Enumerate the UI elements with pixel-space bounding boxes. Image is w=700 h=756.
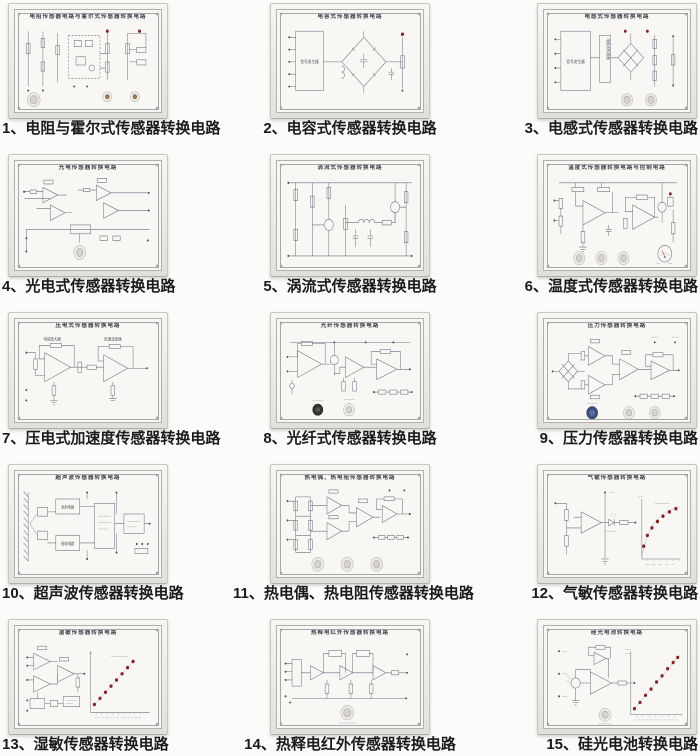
panel-face: 压电式传感器转换电路 电荷放大器 低通滤波器: [14, 318, 162, 423]
knob: [649, 407, 660, 419]
panel-meter: [656, 245, 673, 263]
knob: [599, 708, 611, 721]
circuit-board-2: 电容式传感器转换电路 信号发生器: [270, 3, 430, 119]
knob: [623, 407, 634, 419]
transmit-box-label: 发射电路: [61, 504, 75, 509]
schematic-drawing: 信号发生器 电感式传感器: [548, 23, 686, 109]
circuit-board-9: 压力传感器转换电路: [537, 312, 697, 429]
panel-caption: 1、电阻与霍尔式传感器转换电路: [0, 119, 233, 140]
panel-caption: 2、电容式传感器转换电路: [233, 119, 467, 140]
panel-face: 气敏传感器转换电路: [543, 470, 691, 578]
panel-cell-10: 超声波传感器转换电路 发射电路 接收电路: [0, 450, 233, 605]
panel-face: 湿敏传感器转换电路: [14, 625, 162, 729]
schematic-drawing: [281, 484, 419, 574]
knob: [618, 252, 629, 265]
circuit-board-4: 光电传感器转换电路: [8, 154, 168, 277]
knob: [587, 407, 598, 419]
panel-cell-1: 电阻传感器电路与霍尔式传感器转换电路 1、电阻与霍尔式传感器转换电路: [0, 0, 233, 140]
circuit-board-15: 硅光电池转换电路: [537, 619, 697, 735]
schematic-drawing: [548, 174, 686, 267]
panel-cell-7: 压电式传感器转换电路 电荷放大器 低通滤波器 7、压电式加速度传感器转换: [0, 298, 233, 450]
schematic-drawing: 发射电路 接收电路: [19, 484, 157, 574]
panel-face: 压力传感器转换电路: [543, 318, 691, 423]
panel-cell-4: 光电传感器转换电路 4、: [0, 140, 233, 298]
panel-caption: 13、湿敏传感器转换电路: [0, 735, 233, 756]
panel-cell-15: 硅光电池转换电路: [467, 605, 700, 756]
circuit-board-5: 涡流式传感器转换电路: [270, 154, 430, 277]
panel-title: 电感式传感器转换电路: [544, 12, 690, 20]
panel-face: 超声波传感器转换电路 发射电路 接收电路: [14, 470, 162, 578]
circuit-board-6: 温度式传感器转换电路与控制电路: [537, 154, 697, 277]
panel-caption: 12、气敏传感器转换电路: [467, 584, 700, 605]
panel-caption: 6、温度式传感器转换电路: [467, 277, 700, 298]
panel-title: 涡流式传感器转换电路: [277, 163, 423, 171]
generator-label: 信号发生器: [300, 59, 318, 64]
panel-caption: 5、涡流式传感器转换电路: [233, 277, 467, 298]
schematic-drawing: [281, 174, 419, 267]
response-graph: [89, 651, 149, 718]
lp-filter-label: 低通滤波器: [104, 336, 122, 341]
circuit-board-7: 压电式传感器转换电路 电荷放大器 低通滤波器: [8, 312, 168, 429]
knob: [596, 252, 607, 265]
schematic-drawing: 电荷放大器 低通滤波器: [19, 332, 157, 419]
knob: [313, 404, 323, 415]
knob: [646, 94, 657, 106]
panel-title: 压电式传感器转换电路: [15, 321, 161, 329]
knob: [74, 245, 86, 259]
knob: [341, 557, 353, 571]
knob: [574, 252, 585, 265]
panel-title: 光纤传感器转换电路: [277, 321, 423, 329]
panel-cell-14: 热释电红外传感器转换电路: [233, 605, 467, 756]
panel-caption: 3、电感式传感器转换电路: [467, 119, 700, 140]
schematic-drawing: [548, 484, 686, 574]
panel-cell-12: 气敏传感器转换电路: [467, 450, 700, 605]
knob: [622, 94, 633, 106]
circuit-board-3: 电感式传感器转换电路 信号发生器 电感式传感器: [537, 3, 697, 119]
circuit-board-8: 光纤传感器转换电路: [270, 312, 430, 429]
panel-cell-3: 电感式传感器转换电路 信号发生器 电感式传感器: [467, 0, 700, 140]
panel-title: 温度式传感器转换电路与控制电路: [544, 163, 690, 171]
panel-cell-2: 电容式传感器转换电路 信号发生器 2、电容式传感器转换电路: [233, 0, 467, 140]
panel-caption: 11、热电偶、热电阻传感器转换电路: [233, 584, 467, 605]
panel-caption: 15、硅光电池转换电路: [467, 735, 700, 756]
knob: [341, 706, 354, 720]
panel-cell-9: 压力传感器转换电路: [467, 298, 700, 450]
panel-title: 气敏传感器转换电路: [544, 473, 690, 481]
schematic-drawing: [281, 332, 419, 419]
schematic-drawing: [19, 23, 157, 109]
schematic-drawing: [19, 639, 157, 725]
panel-caption: 9、压力传感器转换电路: [467, 429, 700, 450]
response-graph: [625, 649, 682, 720]
catalog-grid: 电阻传感器电路与霍尔式传感器转换电路 1、电阻与霍尔式传感器转换电路: [0, 0, 700, 756]
panel-title: 光电传感器转换电路: [15, 163, 161, 171]
schematic-drawing: [19, 174, 157, 267]
sensor-label: 电感式传感器: [606, 38, 611, 60]
panel-title: 硅光电池转换电路: [544, 628, 690, 636]
knob: [312, 557, 324, 571]
charge-amp-label: 电荷放大器: [43, 336, 61, 341]
schematic-drawing: 信号发生器: [281, 23, 419, 109]
circuit-board-14: 热释电红外传感器转换电路: [270, 619, 430, 735]
circuit-board-10: 超声波传感器转换电路 发射电路 接收电路: [8, 464, 168, 584]
panel-cell-11: 热电偶、热电阻传感器转换电路: [233, 450, 467, 605]
panel-face: 硅光电池转换电路: [543, 625, 691, 729]
schematic-drawing: [548, 332, 686, 419]
panel-caption: 14、热释电红外传感器转换电路: [233, 735, 467, 756]
circuit-board-13: 湿敏传感器转换电路: [8, 619, 168, 735]
panel-title: 湿敏传感器转换电路: [15, 628, 161, 636]
knob: [344, 403, 355, 415]
panel-caption: 10、超声波传感器转换电路: [0, 584, 233, 605]
knob: [371, 557, 383, 571]
schematic-drawing: [548, 639, 686, 725]
circuit-board-1: 电阻传感器电路与霍尔式传感器转换电路: [8, 3, 168, 119]
panel-caption: 4、光电式传感器转换电路: [0, 277, 233, 298]
panel-cell-6: 温度式传感器转换电路与控制电路: [467, 140, 700, 298]
response-graph: [638, 497, 680, 564]
panel-face: 光纤传感器转换电路: [276, 318, 424, 423]
panel-face: 涡流式传感器转换电路: [276, 160, 424, 271]
generator-label: 信号发生器: [566, 59, 584, 64]
panel-caption: 8、光纤式传感器转换电路: [233, 429, 467, 450]
panel-face: 热释电红外传感器转换电路: [276, 625, 424, 729]
panel-title: 电容式传感器转换电路: [277, 12, 423, 20]
panel-face: 热电偶、热电阻传感器转换电路: [276, 470, 424, 578]
panel-face: 温度式传感器转换电路与控制电路: [543, 160, 691, 271]
schematic-drawing: [281, 639, 419, 725]
circuit-board-11: 热电偶、热电阻传感器转换电路: [270, 464, 430, 584]
panel-face: 电容式传感器转换电路 信号发生器: [276, 9, 424, 113]
circuit-board-12: 气敏传感器转换电路: [537, 464, 697, 584]
panel-title: 压力传感器转换电路: [544, 321, 690, 329]
panel-title: 超声波传感器转换电路: [15, 473, 161, 481]
panel-face: 电阻传感器电路与霍尔式传感器转换电路: [14, 9, 162, 113]
panel-title: 热释电红外传感器转换电路: [277, 628, 423, 636]
panel-caption: 7、压电式加速度传感器转换电路: [0, 429, 233, 450]
knob: [103, 92, 112, 102]
receive-box-label: 接收电路: [61, 541, 75, 546]
knob: [27, 93, 40, 107]
panel-title: 热电偶、热电阻传感器转换电路: [277, 473, 423, 481]
panel-face: 电感式传感器转换电路 信号发生器 电感式传感器: [543, 9, 691, 113]
panel-face: 光电传感器转换电路: [14, 160, 162, 271]
panel-cell-5: 涡流式传感器转换电路 5、涡流式传感器转换电路: [233, 140, 467, 298]
panel-title: 电阻传感器电路与霍尔式传感器转换电路: [15, 12, 161, 20]
knob: [130, 92, 139, 102]
panel-cell-13: 湿敏传感器转换电路: [0, 605, 233, 756]
panel-cell-8: 光纤传感器转换电路: [233, 298, 467, 450]
